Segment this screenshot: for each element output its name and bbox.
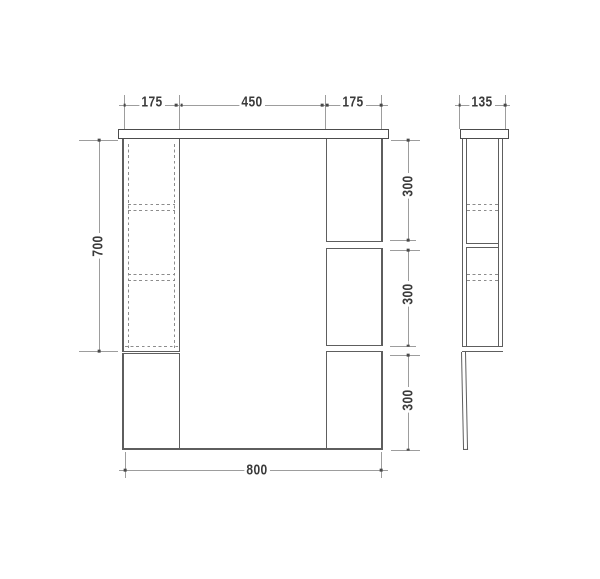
front-left-outer-edge — [122, 139, 124, 450]
front-bottom-edge — [122, 448, 383, 450]
hidden-door-edge-right — [174, 144, 175, 349]
dim-arrow — [407, 448, 410, 451]
dim-arrow — [124, 469, 127, 472]
extension-line — [459, 95, 460, 129]
dim-label-300-3: 300 — [401, 387, 416, 412]
dim-arrow — [504, 104, 507, 107]
front-right-column-inner-edge — [326, 139, 328, 450]
dim-arrow — [407, 139, 410, 142]
hidden-shelf-1-bottom — [128, 210, 175, 211]
side-hidden-shelf-2-bottom — [467, 280, 498, 281]
dim-arrow — [98, 139, 101, 142]
dim-arrow — [407, 344, 410, 347]
extension-line — [390, 346, 416, 347]
side-hidden-shelf-2-top — [467, 274, 498, 275]
technical-drawing: 175 450 175 700 300 300 300 8 — [0, 0, 600, 579]
dim-label-135: 135 — [469, 95, 494, 110]
extension-line — [390, 240, 416, 241]
dim-label-800: 800 — [244, 463, 269, 478]
extension-line — [325, 95, 326, 129]
hidden-bottom-shelf — [125, 346, 179, 347]
extension-line — [390, 355, 420, 356]
front-left-column-inner-edge — [179, 139, 181, 450]
dim-arrow — [407, 354, 410, 357]
left-column-divider — [122, 351, 180, 355]
extension-line — [124, 95, 125, 129]
front-top-panel — [118, 129, 389, 139]
extension-line — [179, 95, 180, 129]
dim-label-700: 700 — [90, 233, 105, 258]
dim-arrow — [98, 350, 101, 353]
hidden-door-edge-left — [128, 144, 129, 349]
extension-line — [390, 250, 420, 251]
dim-label-300-1: 300 — [401, 173, 416, 198]
dim-label-300-2: 300 — [401, 281, 416, 306]
dim-arrow — [380, 104, 383, 107]
dim-label-450: 450 — [239, 95, 264, 110]
dim-arrow — [326, 104, 329, 107]
hidden-shelf-2-bottom — [128, 280, 175, 281]
dim-arrow — [380, 469, 383, 472]
hidden-shelf-1-top — [128, 204, 175, 205]
side-bottom-shelf — [462, 346, 503, 352]
side-middle-shelf — [466, 243, 498, 248]
right-column-shelf-1 — [326, 241, 383, 249]
extension-line — [381, 452, 382, 479]
side-mirror-panel — [461, 352, 468, 450]
dim-arrow — [458, 104, 461, 107]
side-back-wall-outer — [502, 139, 503, 353]
dim-label-175-right: 175 — [340, 95, 365, 110]
extension-line — [505, 95, 506, 129]
dim-arrow — [180, 104, 183, 107]
extension-line — [391, 140, 420, 141]
extension-line — [125, 452, 126, 479]
dim-label-175-left: 175 — [139, 95, 164, 110]
hidden-shelf-2-top — [128, 274, 175, 275]
side-front-wall-outer — [462, 139, 463, 353]
right-column-shelf-2 — [326, 345, 383, 352]
side-hidden-shelf-1-top — [467, 204, 498, 205]
dim-arrow — [321, 104, 324, 107]
extension-line — [391, 450, 420, 451]
side-hidden-shelf-1-bottom — [467, 210, 498, 211]
dim-arrow — [407, 249, 410, 252]
extension-line — [381, 95, 382, 129]
dim-arrow — [407, 239, 410, 242]
side-top-panel — [460, 129, 509, 139]
front-right-outer-edge — [381, 139, 383, 450]
dim-arrow — [175, 104, 178, 107]
dim-arrow — [123, 104, 126, 107]
